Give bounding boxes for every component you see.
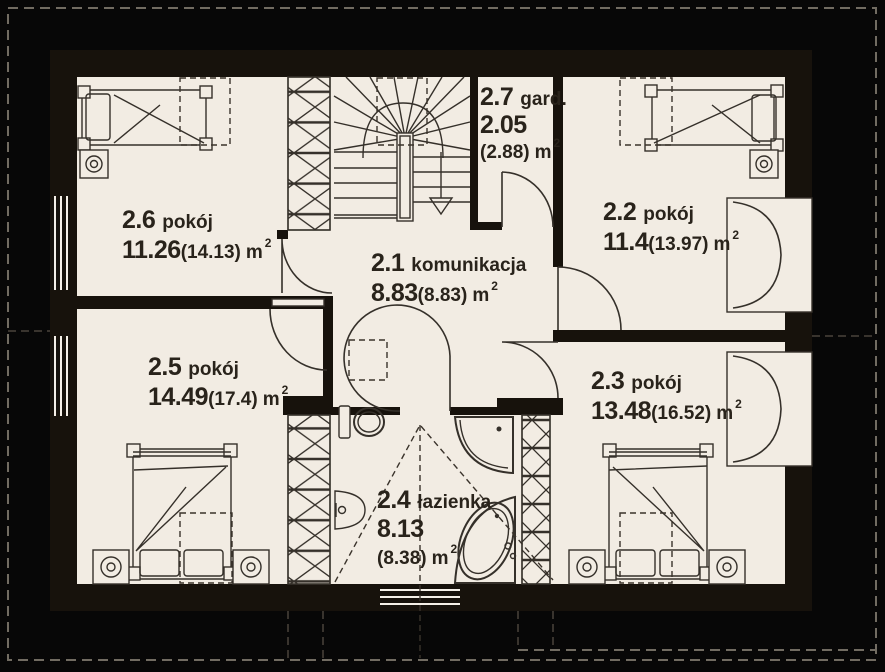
nightstand-2-3-right-icon	[709, 550, 745, 584]
room-number: 2.2	[603, 198, 636, 226]
room-label-2-2: 2.2pokój 11.4(13.97)m2	[603, 197, 739, 257]
room-name: gard.	[520, 89, 566, 110]
room-area: 8.13	[377, 515, 424, 543]
room-area: 14.49	[148, 383, 208, 411]
room-name: komunikacja	[411, 255, 526, 276]
room-number: 2.4	[377, 486, 410, 514]
room-area: 11.4	[603, 228, 648, 256]
room-number: 2.7	[480, 83, 513, 111]
room-label-2-7: 2.7gard. 2.05 (2.88)m2	[480, 83, 567, 167]
nightstand-2-5-right-icon	[233, 550, 269, 584]
room-name: pokój	[162, 212, 213, 233]
room-label-2-6: 2.6pokój 11.26(14.13)m2	[122, 205, 271, 265]
double-bed-2-3-icon	[603, 444, 713, 583]
room-name: pokój	[188, 359, 239, 380]
room-label-2-3: 2.3pokój 13.48(16.52)m2	[591, 366, 742, 426]
room-label-2-5: 2.5pokój 14.49(17.4)m2	[148, 352, 288, 412]
nightstand-2-5-left-icon	[93, 550, 129, 584]
double-bed-2-5-icon	[127, 444, 237, 583]
nightstand-2-2-icon	[750, 150, 778, 178]
nightstand-2-6-icon	[80, 150, 108, 178]
balcony-door-room-2-2-icon	[727, 198, 812, 312]
room-area: 2.05	[480, 111, 527, 139]
room-number: 2.3	[591, 367, 624, 395]
room-number: 2.1	[371, 249, 404, 277]
room-name: pokój	[631, 373, 682, 394]
room-number: 2.5	[148, 353, 181, 381]
room-area: 11.26	[122, 236, 181, 264]
room-label-2-4: 2.4łazienka 8.13 (8.38)m2	[377, 486, 491, 573]
room-name: łazienka	[417, 492, 491, 513]
room-name: pokój	[643, 204, 694, 225]
room-label-2-1: 2.1komunikacja 8.83(8.83)m2	[371, 248, 526, 308]
room-area: 13.48	[591, 397, 651, 425]
floor-plan: 2.6pokój 11.26(14.13)m2 2.7gard. 2.05 (2…	[0, 0, 885, 672]
room-area: 8.83	[371, 279, 418, 307]
room-number: 2.6	[122, 206, 155, 234]
nightstand-2-3-left-icon	[569, 550, 605, 584]
